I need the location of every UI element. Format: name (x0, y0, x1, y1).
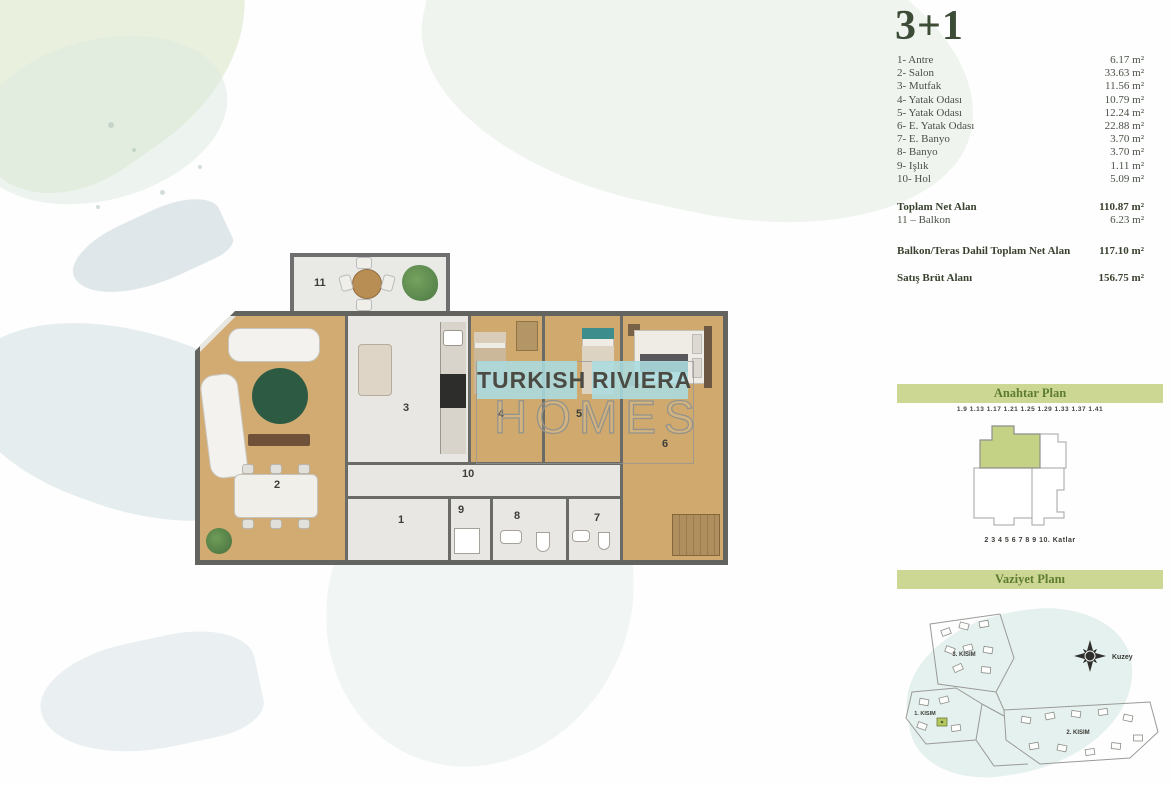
room-number-11: 11 (314, 277, 326, 289)
wardrobe (516, 321, 538, 351)
watermark-word-homes: HOMES (494, 390, 704, 444)
brochure-page: 11 (0, 0, 1170, 785)
summary-label: Satış Brüt Alanı (897, 272, 972, 285)
room-list-row: 9- Işlık1.11 m² (897, 160, 1144, 173)
summary-value: 110.87 m² (1099, 201, 1144, 214)
room-list-row: 2- Salon33.63 m² (897, 67, 1144, 80)
compass-rose-icon (1074, 640, 1106, 672)
room-label: 2- Salon (897, 67, 934, 80)
room-label: 10- Hol (897, 173, 931, 186)
room-hol (348, 462, 620, 496)
pillow (692, 358, 702, 378)
plan-type-title: 3+1 (895, 2, 964, 50)
room-antre (348, 496, 448, 560)
sofa (228, 328, 320, 362)
site-plan-drawing: 3. KISIM 1. KISIM 2. KISIM Kuzey (898, 604, 1165, 779)
room-banyo (490, 496, 566, 560)
summary-net-area: Toplam Net Alan110.87 m² 11 – Balkon6.23… (897, 201, 1144, 227)
background-leaf (31, 618, 269, 771)
room-number-7: 7 (594, 512, 600, 524)
balcony-table (352, 269, 382, 299)
site-plan-header: Vaziyet Planı (897, 570, 1163, 589)
room-area: 11.56 m² (1105, 80, 1144, 93)
balcony-plant (402, 265, 438, 301)
dining-chair (242, 519, 254, 529)
site-label-kisim-2: 2. KISIM (1066, 730, 1089, 736)
washing-machine (454, 528, 480, 554)
room-list-row: 5- Yatak Odası12.24 m² (897, 107, 1144, 120)
room-label: 8- Banyo (897, 146, 938, 159)
room-number-10: 10 (462, 468, 474, 480)
summary-value: 6.23 m² (1110, 214, 1144, 227)
sink (500, 530, 522, 544)
console-table (248, 434, 310, 446)
room-area: 3.70 m² (1110, 146, 1144, 159)
background-leaf (0, 0, 297, 231)
site-label-kisim-1: 1. KISIM (914, 711, 936, 717)
summary-value: 117.10 m² (1099, 245, 1144, 258)
dining-chair (298, 464, 310, 474)
room-number-8: 8 (514, 510, 520, 522)
room-label: 9- Işlık (897, 160, 928, 173)
room-area: 12.24 m² (1105, 107, 1144, 120)
room-label: 1- Antre (897, 54, 933, 67)
oven (440, 374, 466, 408)
room-area: 1.11 m² (1111, 160, 1144, 173)
background-speckle (160, 190, 165, 195)
key-plan-right-unit (1040, 434, 1066, 468)
balcony-chair (380, 274, 396, 293)
room-label: 7- E. Banyo (897, 133, 950, 146)
compass-label: Kuzey (1112, 654, 1133, 661)
summary-gross-area: Satış Brüt Alanı156.75 m² (897, 272, 1144, 285)
key-plan-lower-right-unit (1032, 468, 1064, 525)
dining-chair (270, 464, 282, 474)
balcony-chair (338, 274, 354, 293)
room-list-row: 3- Mutfak11.56 m² (897, 80, 1144, 93)
pillow (692, 334, 702, 354)
room-number-3: 3 (403, 402, 409, 414)
summary-incl-balcony: Balkon/Teras Dahil Toplam Net Alan117.10… (897, 245, 1144, 258)
site-road (976, 692, 1028, 766)
room-area: 6.17 m² (1110, 54, 1144, 67)
background-speckle (96, 205, 100, 209)
room-area: 10.79 m² (1105, 94, 1144, 107)
balcony-chair (356, 299, 372, 311)
background-leaf (0, 9, 246, 231)
room-list-row: 6- E. Yatak Odası22.88 m² (897, 120, 1144, 133)
room-area: 22.88 m² (1105, 120, 1144, 133)
headboard (704, 326, 712, 388)
room-list-row: 10- Hol5.09 m² (897, 173, 1144, 186)
room-list-row: 8- Banyo3.70 m² (897, 146, 1144, 159)
wardrobe (672, 514, 720, 556)
room-label: 6- E. Yatak Odası (897, 120, 974, 133)
room-number-1: 1 (398, 514, 404, 526)
balcony-chair (356, 257, 372, 269)
key-plan-lower-left-unit (974, 468, 1032, 525)
summary-label: 11 – Balkon (897, 214, 950, 227)
key-plan-unit-numbers: 1.9 1.13 1.17 1.21 1.25 1.29 1.33 1.37 1… (897, 406, 1163, 413)
breakfast-table (358, 344, 392, 396)
room-number-2: 2 (274, 479, 280, 491)
key-plan-header: Anahtar Plan (897, 384, 1163, 403)
sink (572, 530, 590, 542)
toilet (536, 532, 550, 552)
background-speckle (108, 122, 114, 128)
room-list-row: 7- E. Banyo3.70 m² (897, 133, 1144, 146)
dining-chair (242, 464, 254, 474)
round-rug (252, 368, 308, 424)
room-area-list: 1- Antre6.17 m² 2- Salon33.63 m² 3- Mutf… (897, 54, 1144, 186)
background-speckle (198, 165, 202, 169)
site-label-kisim-3: 3. KISIM (952, 652, 975, 658)
pillow (474, 332, 506, 343)
room-area: 33.63 m² (1105, 67, 1144, 80)
room-area: 3.70 m² (1110, 133, 1144, 146)
room-ebeveyn-banyo (566, 496, 620, 560)
summary-value: 156.75 m² (1099, 272, 1144, 285)
summary-label: Balkon/Teras Dahil Toplam Net Alan (897, 245, 1070, 258)
dining-chair (298, 519, 310, 529)
toilet (598, 532, 610, 550)
summary-label: Toplam Net Alan (897, 201, 977, 214)
room-label: 5- Yatak Odası (897, 107, 962, 120)
dining-chair (270, 519, 282, 529)
room-label: 3- Mutfak (897, 80, 941, 93)
room-list-row: 4- Yatak Odası10.79 m² (897, 94, 1144, 107)
pillow (582, 328, 614, 339)
plant (206, 528, 232, 554)
sink (443, 330, 463, 346)
room-area: 5.09 m² (1110, 173, 1144, 186)
key-plan-floors-caption: 2 3 4 5 6 7 8 9 10. Katlar (897, 537, 1163, 544)
room-number-9: 9 (458, 504, 464, 516)
room-list-row: 1- Antre6.17 m² (897, 54, 1144, 67)
key-plan-highlighted-unit (980, 426, 1040, 468)
background-speckle (132, 148, 136, 152)
key-plan-drawing (960, 418, 1100, 536)
balcony-room: 11 (290, 253, 450, 315)
room-label: 4- Yatak Odası (897, 94, 962, 107)
